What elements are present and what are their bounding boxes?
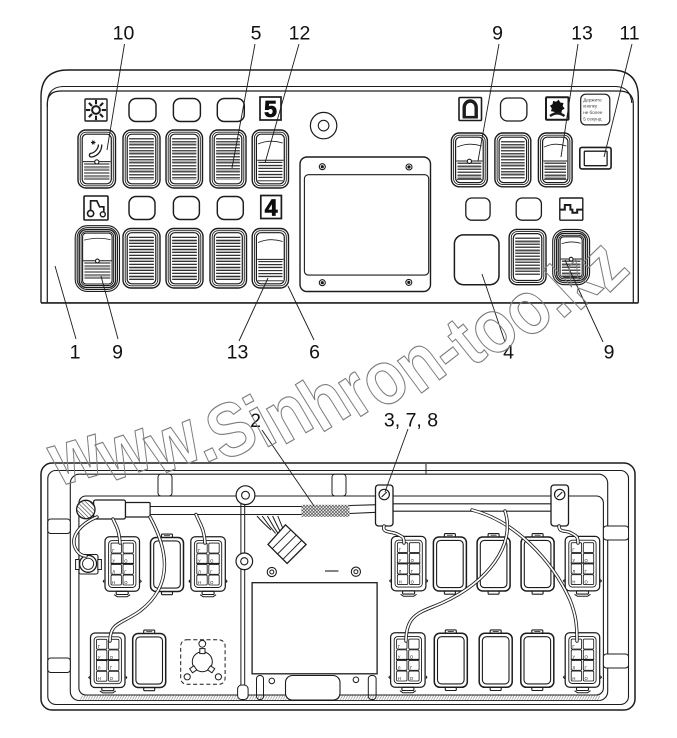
svg-text:5 секунд: 5 секунд [583, 117, 602, 122]
svg-text:Н: Н [98, 676, 101, 681]
svg-text:9: 9 [492, 23, 503, 45]
svg-text:Л: Л [198, 569, 201, 574]
svg-text:11: 11 [619, 23, 639, 45]
svg-text:13: 13 [571, 23, 593, 45]
svg-text:Л: Л [112, 569, 115, 574]
svg-text:У: У [572, 655, 575, 660]
svg-text:У: У [572, 558, 575, 563]
svg-text:Л: Л [572, 569, 575, 574]
svg-text:9: 9 [112, 342, 123, 364]
svg-text:У: У [112, 559, 115, 564]
svg-text:кнопку: кнопку [583, 104, 598, 109]
svg-text:Н: Н [572, 676, 575, 681]
svg-text:Л: Л [98, 666, 101, 671]
svg-text:У: У [398, 655, 401, 660]
svg-text:1: 1 [70, 342, 81, 364]
svg-text:Н: Н [112, 580, 115, 585]
svg-text:10: 10 [113, 23, 135, 45]
svg-text:Держите: Держите [583, 97, 602, 102]
svg-text:Н: Н [198, 580, 201, 585]
svg-text:Н: Н [398, 676, 401, 681]
svg-text:У: У [198, 559, 201, 564]
svg-text:Л: Л [399, 569, 402, 574]
svg-text:Л: Л [398, 665, 401, 670]
svg-text:Н: Н [399, 580, 402, 585]
svg-text:не более: не более [583, 110, 603, 115]
svg-text:Л: Л [572, 665, 575, 670]
svg-text:13: 13 [227, 342, 249, 364]
svg-text:У: У [98, 655, 101, 660]
svg-text:5: 5 [264, 96, 277, 122]
svg-text:Н: Н [572, 580, 575, 585]
svg-text:У: У [399, 558, 402, 563]
svg-text:5: 5 [251, 23, 262, 45]
svg-text:12: 12 [289, 23, 311, 45]
svg-text:4: 4 [265, 194, 278, 220]
svg-text:9: 9 [604, 342, 615, 364]
